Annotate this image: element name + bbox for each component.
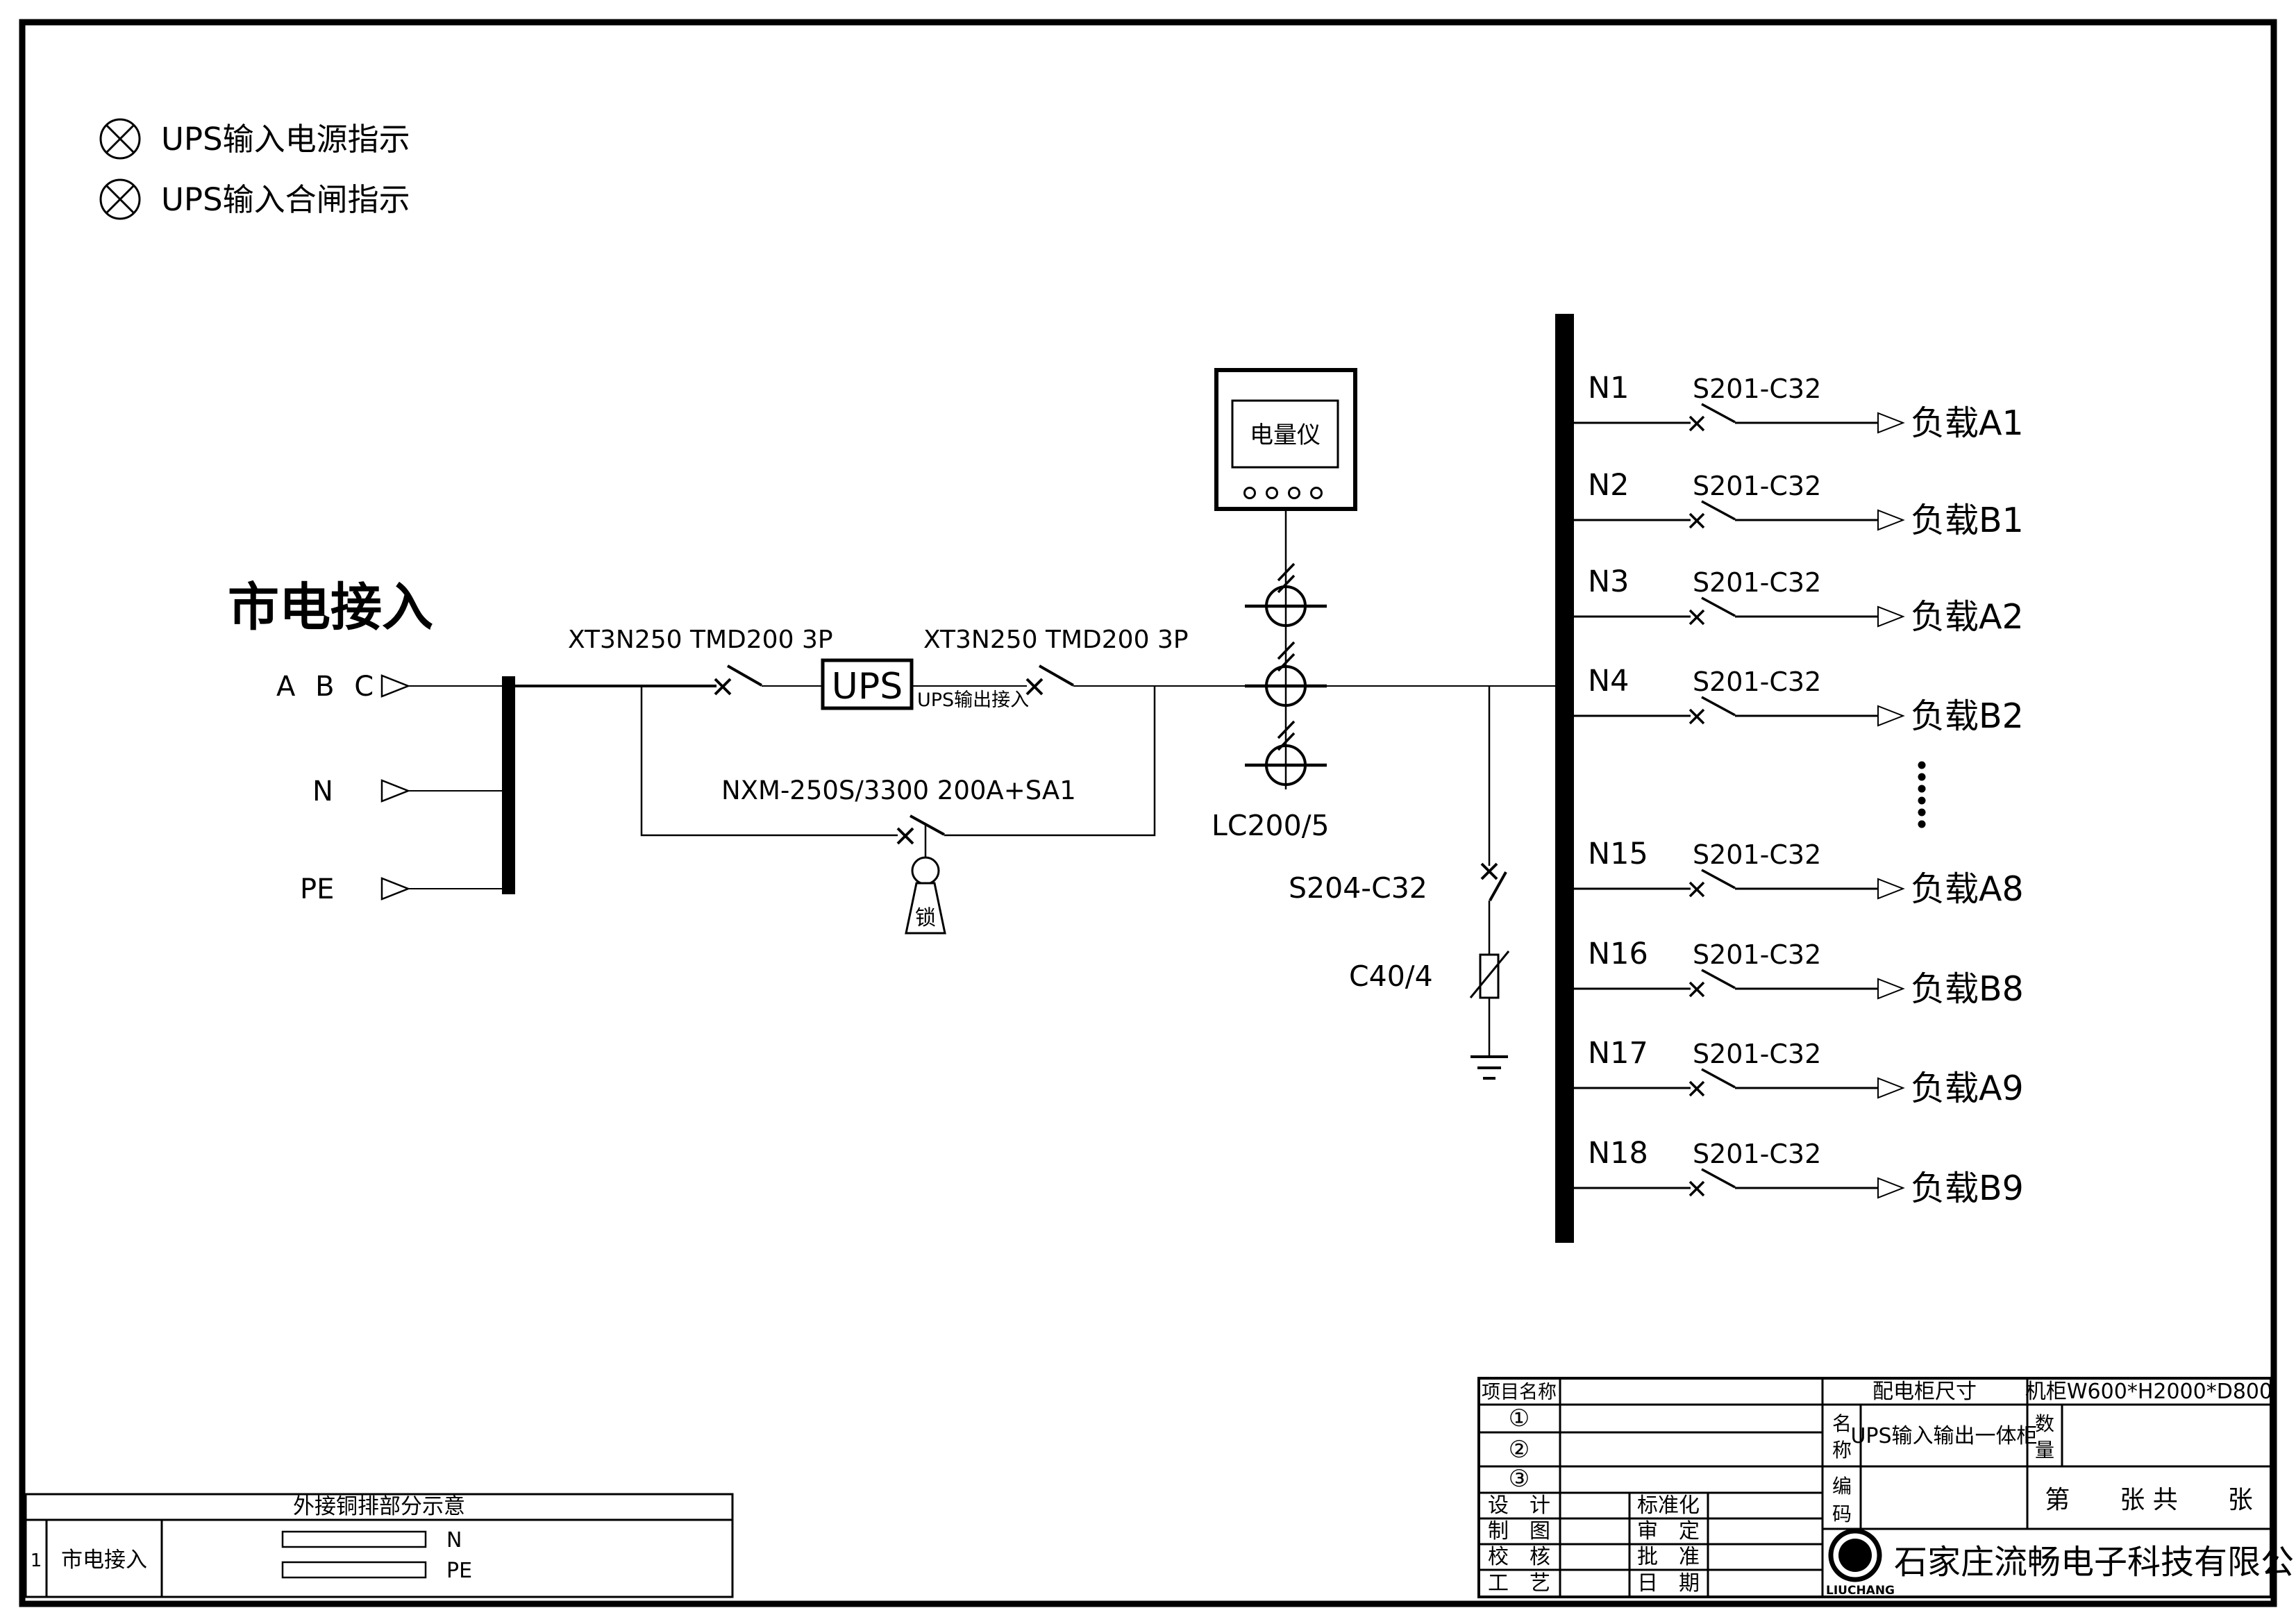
- branch-load-label: 负载A9: [1911, 1069, 2024, 1108]
- phase-label: A B C: [276, 671, 379, 703]
- project-name-label: 项目名称: [1482, 1382, 1557, 1403]
- pe-label: PE: [300, 873, 334, 905]
- approve-label: 批 准: [1637, 1545, 1700, 1569]
- input-arrow-icon: [382, 780, 408, 801]
- output-breaker-label: XT3N250 TMD200 3P: [923, 626, 1189, 654]
- branch-load-label: 负载B8: [1911, 969, 2024, 1009]
- item-row-3: ③: [1509, 1465, 1530, 1493]
- standardization-label: 标准化: [1637, 1493, 1700, 1518]
- spd-branch: S204-C32 C40/4: [1289, 686, 1509, 1078]
- branch-row-n16: N16 S201-C32 负载B8: [1574, 937, 2024, 1009]
- name-label-char-1: 名: [1832, 1412, 1852, 1435]
- input-arrow-icon: [382, 676, 408, 696]
- check-label: 校 核: [1488, 1545, 1550, 1569]
- ellipsis-dots: [1918, 762, 1926, 828]
- branch-row-n18: N18 S201-C32 负载B9: [1574, 1136, 2024, 1208]
- input-busbar: [502, 676, 515, 894]
- load-arrow-icon: [1878, 706, 1903, 726]
- title-block: 项目名称 ① ② ③ 设 计 标准化 制 图 审 定 校 核 批 准 工 艺 日…: [1479, 1378, 2296, 1598]
- mains-title: 市电接入: [228, 578, 433, 637]
- legend-power-label: UPS输入电源指示: [161, 121, 410, 158]
- name-label-char-2: 称: [1832, 1439, 1852, 1462]
- branch-breaker-label: S201-C32: [1693, 939, 1821, 970]
- item-row-2: ②: [1509, 1436, 1530, 1464]
- design-label: 设 计: [1488, 1493, 1550, 1518]
- branch-row-n15: N15 S201-C32 负载A8: [1574, 837, 2024, 909]
- branch-id: N18: [1588, 1136, 1648, 1171]
- lamp-icon: [101, 180, 140, 219]
- spd-breaker-label: S204-C32: [1289, 871, 1427, 905]
- load-arrow-icon: [1878, 1178, 1903, 1198]
- distribution-busbar: [1555, 314, 1574, 1243]
- spd-breaker-symbol: [1482, 864, 1506, 901]
- mains-terminal-n: N: [312, 776, 502, 807]
- schematic-sheet: UPS输入电源指示 UPS输入合闸指示 市电接入 A B C N PE XT3N…: [0, 0, 2296, 1624]
- input-arrow-icon: [382, 878, 408, 899]
- varistor-icon: [1470, 951, 1509, 998]
- process-label: 工 艺: [1488, 1571, 1550, 1596]
- copper-bar-pe: [283, 1562, 426, 1577]
- branch-breaker-label: S201-C32: [1693, 667, 1821, 697]
- branch-row-n4: N4 S201-C32 负载B2: [1574, 664, 2024, 736]
- input-breaker-label: XT3N250 TMD200 3P: [568, 626, 833, 654]
- company-name: 石家庄流畅电子科技有限公司: [1894, 1543, 2296, 1582]
- qty-label-char-2: 量: [2035, 1439, 2054, 1462]
- drafting-label: 制 图: [1488, 1519, 1550, 1543]
- ct-label: LC200/5: [1212, 809, 1330, 842]
- mains-terminal-abc: A B C: [276, 671, 502, 703]
- neutral-label: N: [312, 776, 333, 807]
- input-breaker-symbol: [715, 666, 762, 694]
- branch-id: N17: [1588, 1036, 1648, 1071]
- cabinet-name-value: UPS输入输出一体柜: [1850, 1424, 2037, 1448]
- branch-load-label: 负载A8: [1911, 869, 2024, 909]
- branch-load-label: 负载B2: [1911, 696, 2024, 736]
- branch-id: N4: [1588, 664, 1629, 698]
- copper-bar-table: 外接铜排部分示意 1 市电接入 N PE: [26, 1494, 732, 1597]
- logo-letter: G: [1844, 1540, 1867, 1572]
- branch-breaker-label: S201-C32: [1693, 1039, 1821, 1069]
- power-meter: 电量仪: [1216, 370, 1355, 509]
- item-row-1: ①: [1509, 1405, 1530, 1432]
- company-logo: G LIUCHANG: [1826, 1531, 1895, 1598]
- code-label-char-2: 码: [1832, 1502, 1852, 1525]
- load-arrow-icon: [1878, 879, 1903, 898]
- lamp-icon: [101, 119, 140, 158]
- copper-bar-pe-label: PE: [446, 1559, 472, 1583]
- branch-id: N2: [1588, 468, 1629, 503]
- ct-assembly: LC200/5: [1212, 509, 1330, 842]
- branch-breaker-label: S201-C32: [1693, 1139, 1821, 1169]
- branch-row-n3: N3 S201-C32 负载A2: [1574, 564, 2024, 637]
- legend-indicator-power: UPS输入电源指示: [101, 119, 410, 158]
- cabinet-size-label: 配电柜尺寸: [1872, 1380, 1977, 1404]
- sheet-number-text: 第 张 共 张: [2045, 1486, 2252, 1514]
- copper-table-title: 外接铜排部分示意: [293, 1494, 465, 1519]
- legend-indicator-closing: UPS输入合闸指示: [101, 180, 410, 219]
- lock-label: 锁: [915, 906, 936, 930]
- copper-bar-n: [283, 1532, 426, 1547]
- output-breaker-symbol: [1027, 666, 1073, 694]
- load-arrow-icon: [1878, 510, 1903, 530]
- branch-load-label: 负载B1: [1911, 501, 2024, 540]
- qty-label-char-1: 数: [2035, 1412, 2054, 1435]
- branch-id: N15: [1588, 837, 1648, 871]
- branch-row-n2: N2 S201-C32 负载B1: [1574, 468, 2024, 540]
- branch-id: N1: [1588, 371, 1629, 405]
- date-label: 日 期: [1637, 1571, 1700, 1596]
- code-label-char-1: 编: [1832, 1475, 1852, 1498]
- spd-label: C40/4: [1349, 960, 1433, 993]
- meter-label: 电量仪: [1250, 421, 1321, 449]
- branch-breaker-label: S201-C32: [1693, 567, 1821, 598]
- copper-row-label: 市电接入: [61, 1548, 147, 1573]
- branch-load-label: 负载A2: [1911, 597, 2024, 637]
- load-arrow-icon: [1878, 979, 1903, 998]
- branch-breaker-label: S201-C32: [1693, 839, 1821, 870]
- bypass-breaker-label: NXM-250S/3300 200A+SA1: [721, 776, 1076, 805]
- branch-id: N16: [1588, 937, 1648, 971]
- load-arrow-icon: [1878, 607, 1903, 626]
- branch-load-label: 负载A1: [1911, 403, 2024, 443]
- ups-box-label: UPS: [832, 666, 903, 708]
- branch-breaker-label: S201-C32: [1693, 374, 1821, 404]
- sheet-border: [22, 22, 2274, 1604]
- branch-row-n17: N17 S201-C32 负载A9: [1574, 1036, 2024, 1108]
- bypass-breaker-symbol: [898, 816, 944, 844]
- load-arrow-icon: [1878, 1078, 1903, 1098]
- bypass-branch: NXM-250S/3300 200A+SA1 锁: [642, 686, 1155, 933]
- logo-text: LIUCHANG: [1826, 1584, 1895, 1598]
- copper-row-no: 1: [31, 1550, 42, 1571]
- branch-load-label: 负载B9: [1911, 1169, 2024, 1208]
- copper-bar-n-label: N: [446, 1528, 462, 1552]
- branch-id: N3: [1588, 564, 1629, 599]
- mains-terminal-pe: PE: [300, 873, 502, 905]
- cabinet-size-value: 机柜W600*H2000*D800: [2025, 1380, 2272, 1404]
- legend-closing-label: UPS输入合闸指示: [161, 181, 410, 218]
- ground-icon: [1470, 1057, 1508, 1078]
- load-arrow-icon: [1878, 413, 1903, 433]
- ups-output-note: UPS输出接入: [917, 689, 1029, 711]
- branch-row-n1: N1 S201-C32 负载A1: [1574, 371, 2024, 443]
- branch-breaker-label: S201-C32: [1693, 471, 1821, 501]
- review-label: 审 定: [1637, 1519, 1700, 1543]
